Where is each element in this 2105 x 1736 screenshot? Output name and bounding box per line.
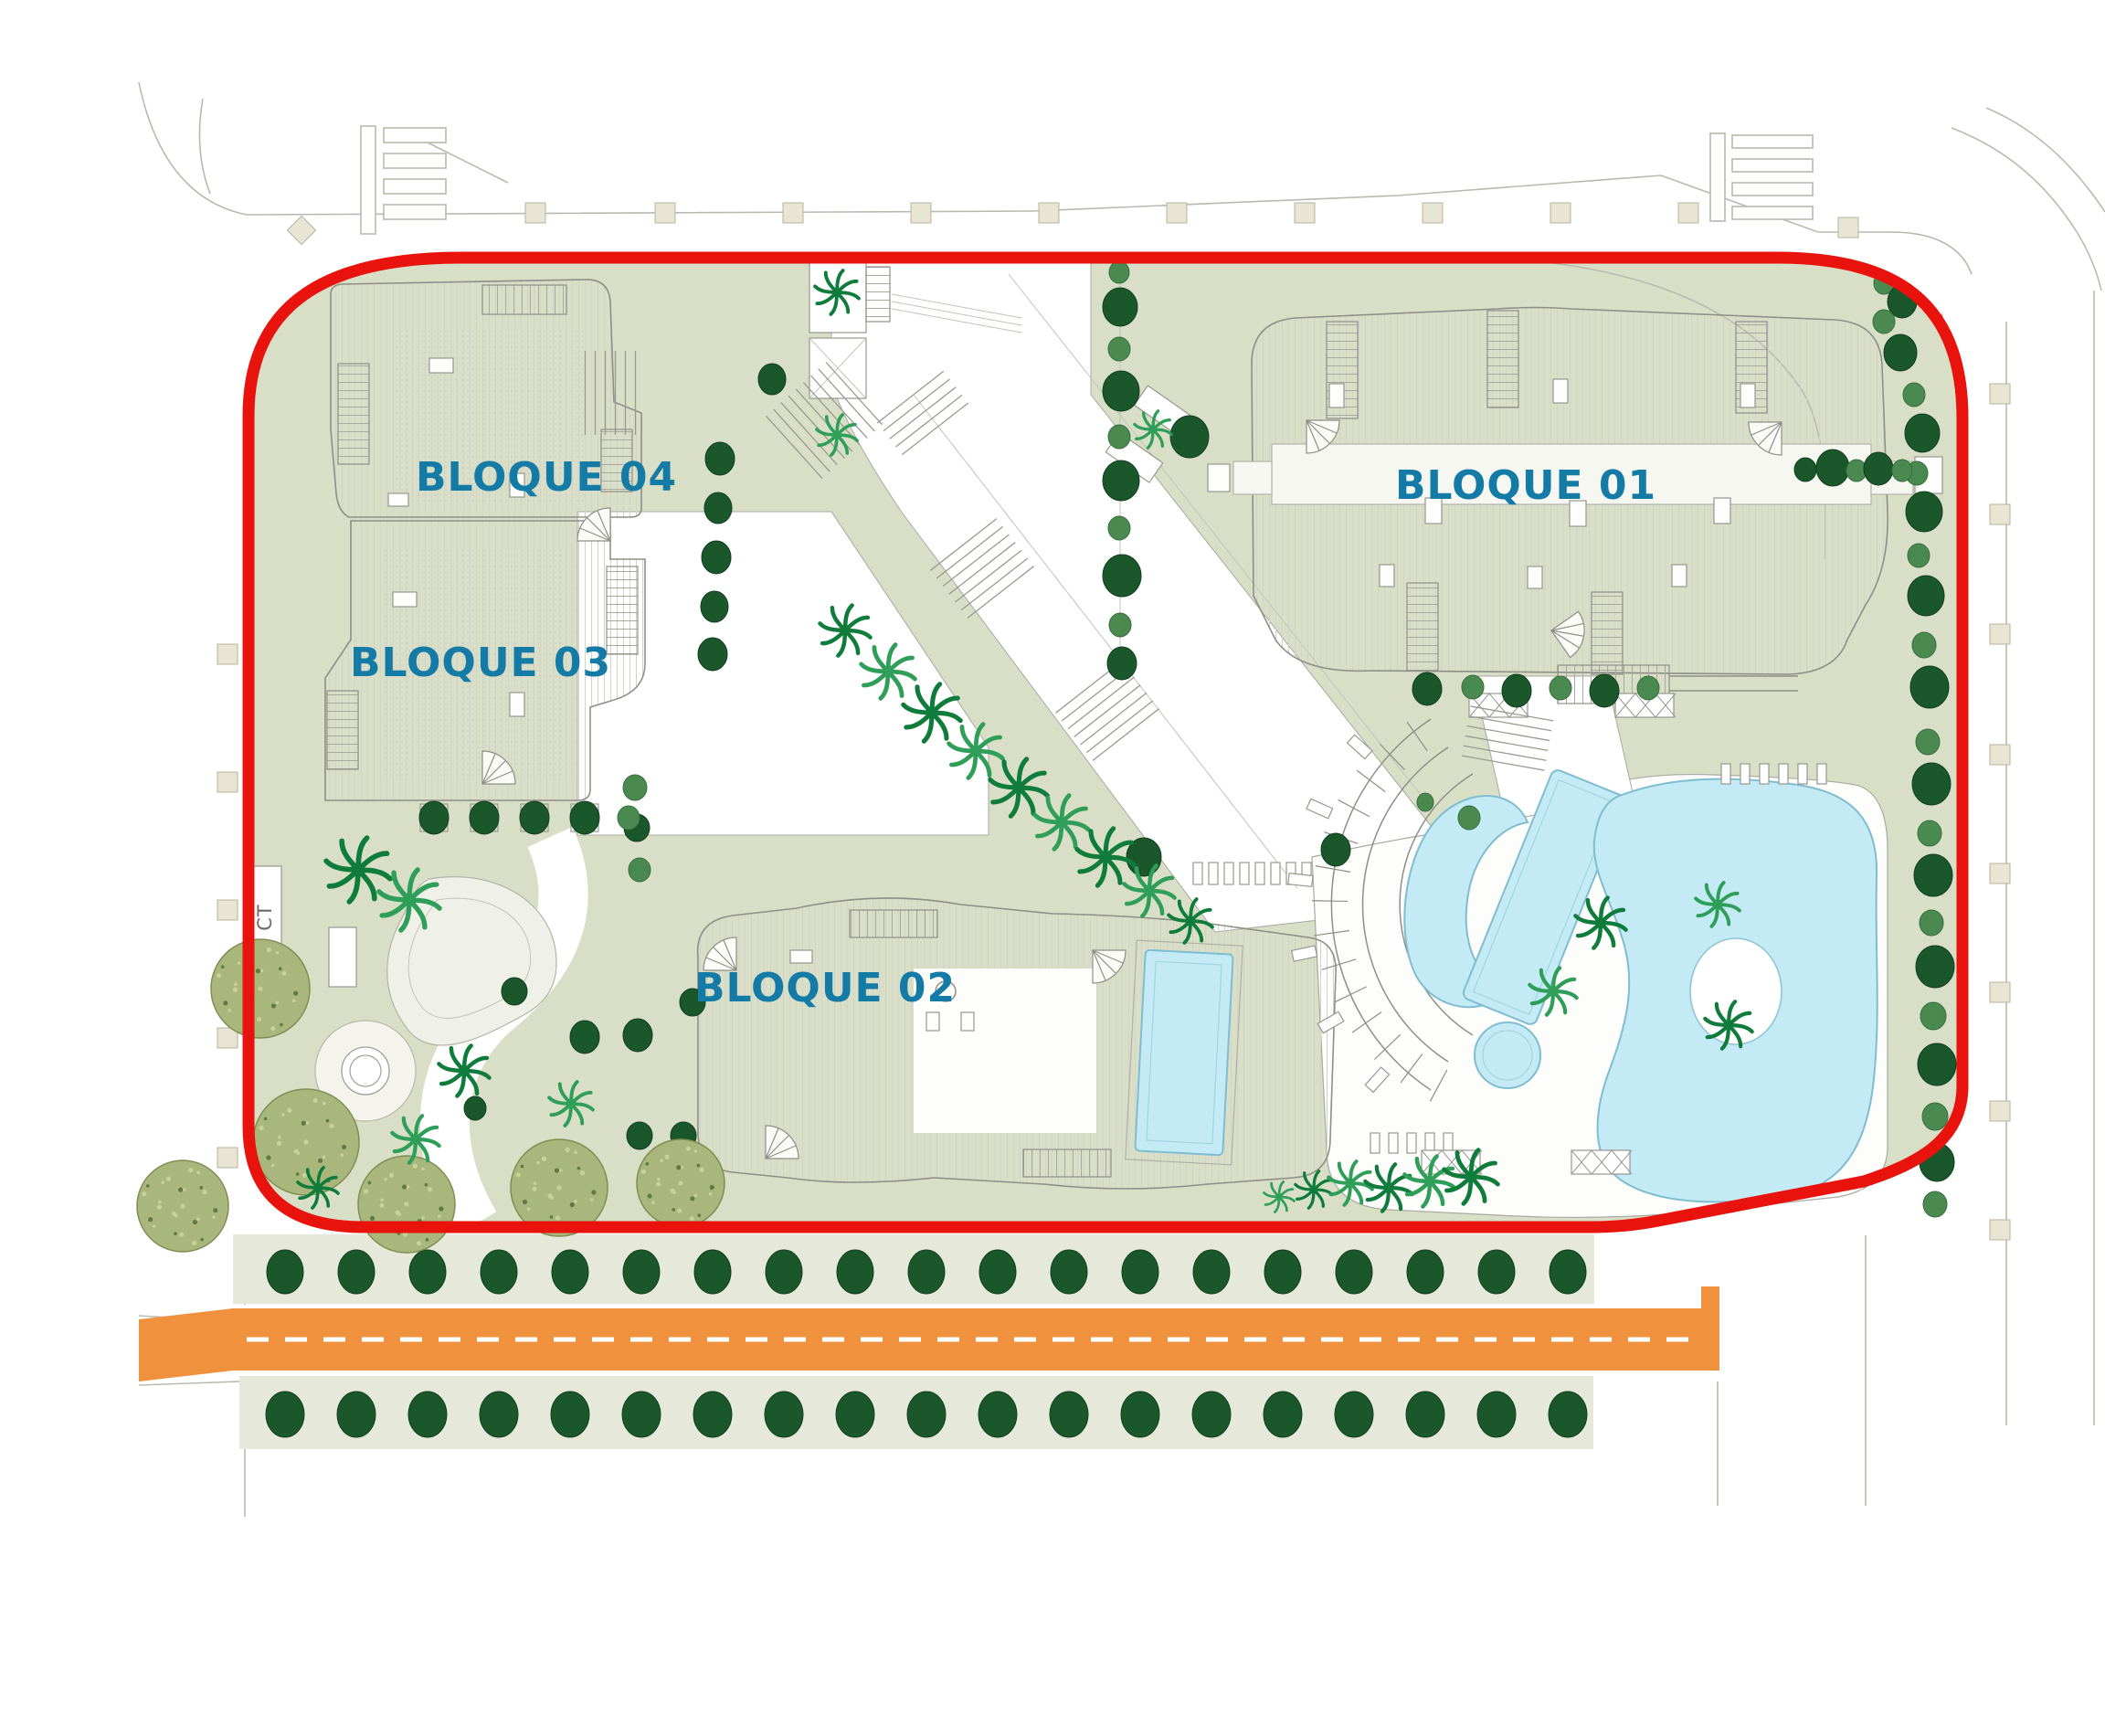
- site-plan-canvas: [0, 0, 2105, 1736]
- jacuzzi: [1475, 1022, 1540, 1088]
- site-plan: BLOQUE 04 BLOQUE 03 BLOQUE 01 BLOQUE 02 …: [0, 0, 2105, 1736]
- label-bloque-04: BLOQUE 04: [416, 454, 677, 501]
- crosswalk-top-right: [1710, 133, 1813, 221]
- label-bloque-03: BLOQUE 03: [350, 640, 611, 686]
- label-bloque-01: BLOQUE 01: [1395, 462, 1656, 509]
- label-transformer: CT: [254, 888, 276, 947]
- label-bloque-02: BLOQUE 02: [694, 965, 956, 1011]
- pool-island: [1690, 938, 1782, 1044]
- crosswalk-top-left: [361, 126, 446, 234]
